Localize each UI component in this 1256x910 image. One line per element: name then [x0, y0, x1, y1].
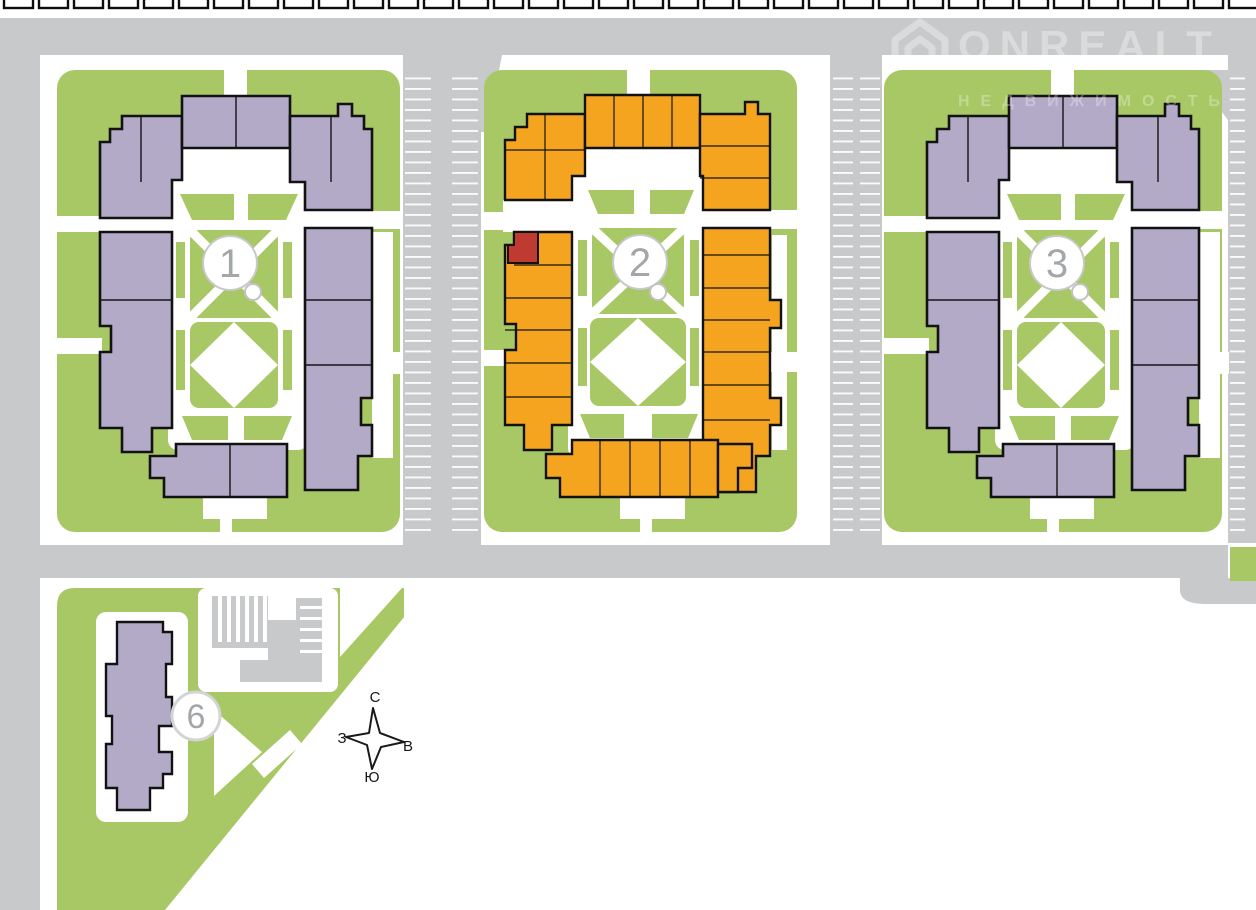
compass-rose: С В Ю З	[337, 689, 413, 786]
parking-stall	[214, 0, 243, 8]
parking-stall	[599, 0, 628, 8]
watermark-brand: ONREALT	[958, 22, 1221, 69]
compass-west-label: З	[337, 730, 346, 747]
building-3-number: 3	[1046, 242, 1068, 286]
parking-stall	[879, 0, 908, 8]
parking-stall	[74, 0, 103, 8]
building-3-playground-circle	[1072, 284, 1088, 300]
building-2-number: 2	[629, 241, 651, 285]
parking-stall	[634, 0, 663, 8]
parking-stall	[1054, 0, 1083, 8]
parking-stall	[389, 0, 418, 8]
parking-stall	[1019, 0, 1048, 8]
building-1-number: 1	[219, 242, 241, 286]
compass-south-label: Ю	[364, 769, 379, 786]
parking-stall	[564, 0, 593, 8]
parking-stall	[984, 0, 1013, 8]
parking-stall	[809, 0, 838, 8]
parking-stall	[354, 0, 383, 8]
lawn-corner-patch	[1230, 547, 1256, 581]
parking-stall	[1229, 0, 1256, 8]
road-left	[0, 18, 40, 910]
parking-stall	[4, 0, 33, 8]
parking-stall	[739, 0, 768, 8]
building-1-playground-circle	[245, 284, 261, 300]
parking-stall	[109, 0, 138, 8]
parking-stall	[1124, 0, 1153, 8]
road-middle	[40, 545, 1228, 578]
building-6-number: 6	[187, 698, 206, 736]
parking-stall	[949, 0, 978, 8]
road-middle-right-curve	[1180, 578, 1256, 604]
parking-stall	[1194, 0, 1223, 8]
watermark-subtitle: НЕДВИЖИМОСТЬ	[958, 93, 1231, 110]
parking-stall	[249, 0, 278, 8]
parking-stall	[424, 0, 453, 8]
parking-stall	[144, 0, 173, 8]
parking-stall	[704, 0, 733, 8]
parking-stall	[284, 0, 313, 8]
parking-stall	[844, 0, 873, 8]
top-parking-stalls	[4, 0, 1256, 8]
parking-stall	[459, 0, 488, 8]
compass-east-label: В	[403, 738, 413, 755]
parking-stall	[529, 0, 558, 8]
parking-stall	[494, 0, 523, 8]
parking-stall	[39, 0, 68, 8]
parking-stall	[1089, 0, 1118, 8]
compass-star	[346, 708, 404, 769]
parking-stall	[319, 0, 348, 8]
parking-stall	[914, 0, 943, 8]
parking-stall	[1159, 0, 1188, 8]
compass-north-label: С	[370, 689, 381, 706]
parking-stall	[669, 0, 698, 8]
parking-stall	[179, 0, 208, 8]
building-2-playground-circle	[650, 284, 666, 300]
parking-stall	[774, 0, 803, 8]
